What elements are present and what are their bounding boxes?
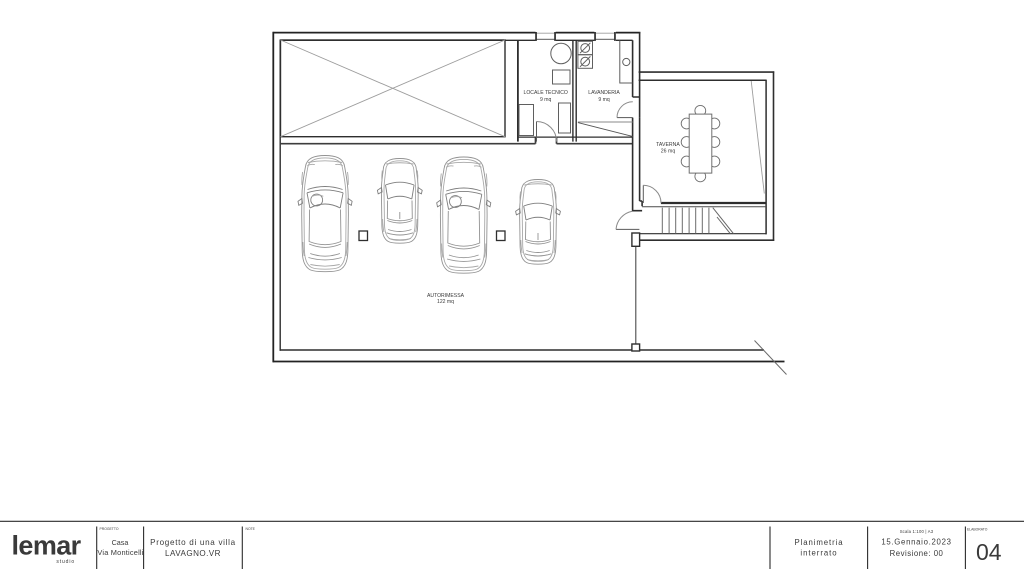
svg-text:Scala 1:100 | A3: Scala 1:100 | A3: [900, 529, 934, 534]
svg-text:Planimetria: Planimetria: [795, 538, 844, 547]
svg-text:lemar: lemar: [12, 531, 82, 561]
svg-text:9 mq: 9 mq: [598, 97, 609, 103]
svg-text:Casa: Casa: [112, 538, 129, 547]
svg-text:NOTE: NOTE: [246, 527, 256, 531]
svg-text:ELABORATO: ELABORATO: [967, 528, 988, 532]
svg-text:LAVAGNO.VR: LAVAGNO.VR: [165, 549, 221, 558]
svg-text:Revisione: 00: Revisione: 00: [890, 549, 944, 558]
svg-text:studio: studio: [56, 559, 75, 565]
svg-text:LOCALE TECNICO: LOCALE TECNICO: [524, 90, 568, 96]
svg-text:26 mq: 26 mq: [661, 149, 676, 155]
svg-text:Via Monticelli: Via Monticelli: [97, 548, 143, 557]
svg-text:Progetto di una villa: Progetto di una villa: [150, 538, 236, 547]
svg-text:9 mq: 9 mq: [540, 97, 551, 103]
svg-text:LAVANDERIA: LAVANDERIA: [588, 90, 620, 96]
svg-text:122 mq: 122 mq: [437, 299, 454, 305]
svg-text:PROGETTO: PROGETTO: [100, 527, 119, 531]
svg-text:interrato: interrato: [800, 549, 837, 558]
svg-text:15.Gennaio.2023: 15.Gennaio.2023: [881, 538, 951, 547]
svg-text:TAVERNA: TAVERNA: [656, 142, 680, 148]
svg-text:04: 04: [976, 539, 1002, 565]
